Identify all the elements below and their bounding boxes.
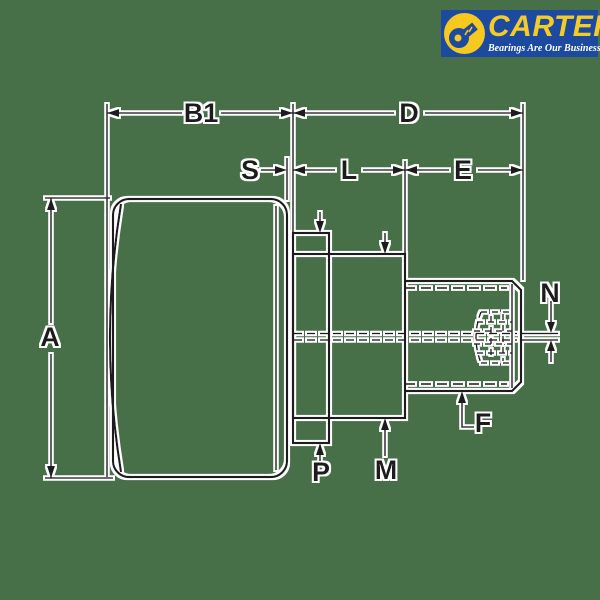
dim-label-e: E [454, 155, 472, 185]
cam-follower-glyph [444, 13, 485, 54]
dimension-labels: B1 D S L E A N P M F [40, 98, 560, 487]
dim-label-b1: B1 [184, 98, 219, 128]
dim-label-n: N [540, 278, 560, 308]
dim-label-l: L [341, 155, 358, 185]
flange-outline [293, 233, 329, 443]
dim-label-d: D [399, 98, 419, 128]
cam-follower-dimension-drawing: B1 D S L E A N P M F [0, 0, 600, 600]
carter-tagline: Bearings Are Our Business [488, 43, 598, 54]
carter-logo-bearing-icon [444, 13, 485, 54]
carter-logo-text: CARTER Bearings Are Our Business [488, 11, 598, 54]
grease-hole-hidden-lines [294, 334, 558, 341]
diagram-canvas: B1 D S L E A N P M F CARTE [0, 0, 600, 600]
extension-lines [45, 104, 523, 478]
dim-label-f: F [475, 408, 492, 438]
dim-label-p: P [312, 457, 330, 487]
dim-label-a: A [40, 322, 60, 352]
hex-socket-hidden-lines [474, 312, 512, 363]
dim-label-m: M [375, 455, 398, 485]
dim-label-s: S [241, 155, 259, 185]
carter-logo: CARTER Bearings Are Our Business [441, 10, 598, 57]
roller-outline [110, 199, 287, 477]
shoulder-outline [293, 254, 405, 418]
carter-brand-name: CARTER [488, 11, 598, 43]
